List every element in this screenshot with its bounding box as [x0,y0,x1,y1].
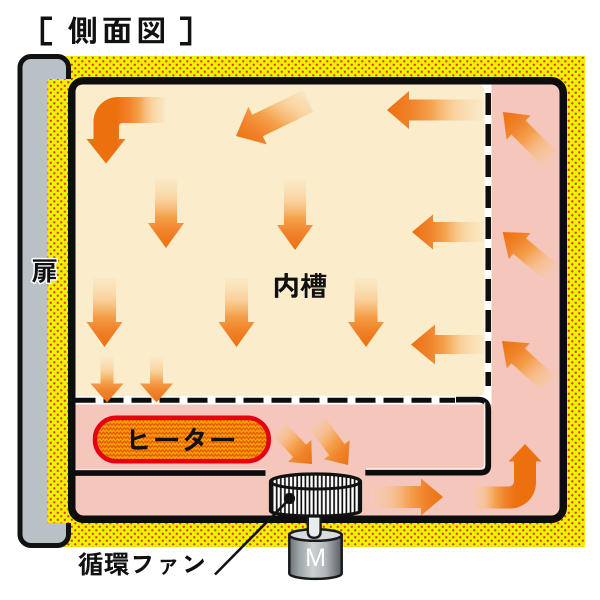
svg-text:M: M [305,544,326,572]
